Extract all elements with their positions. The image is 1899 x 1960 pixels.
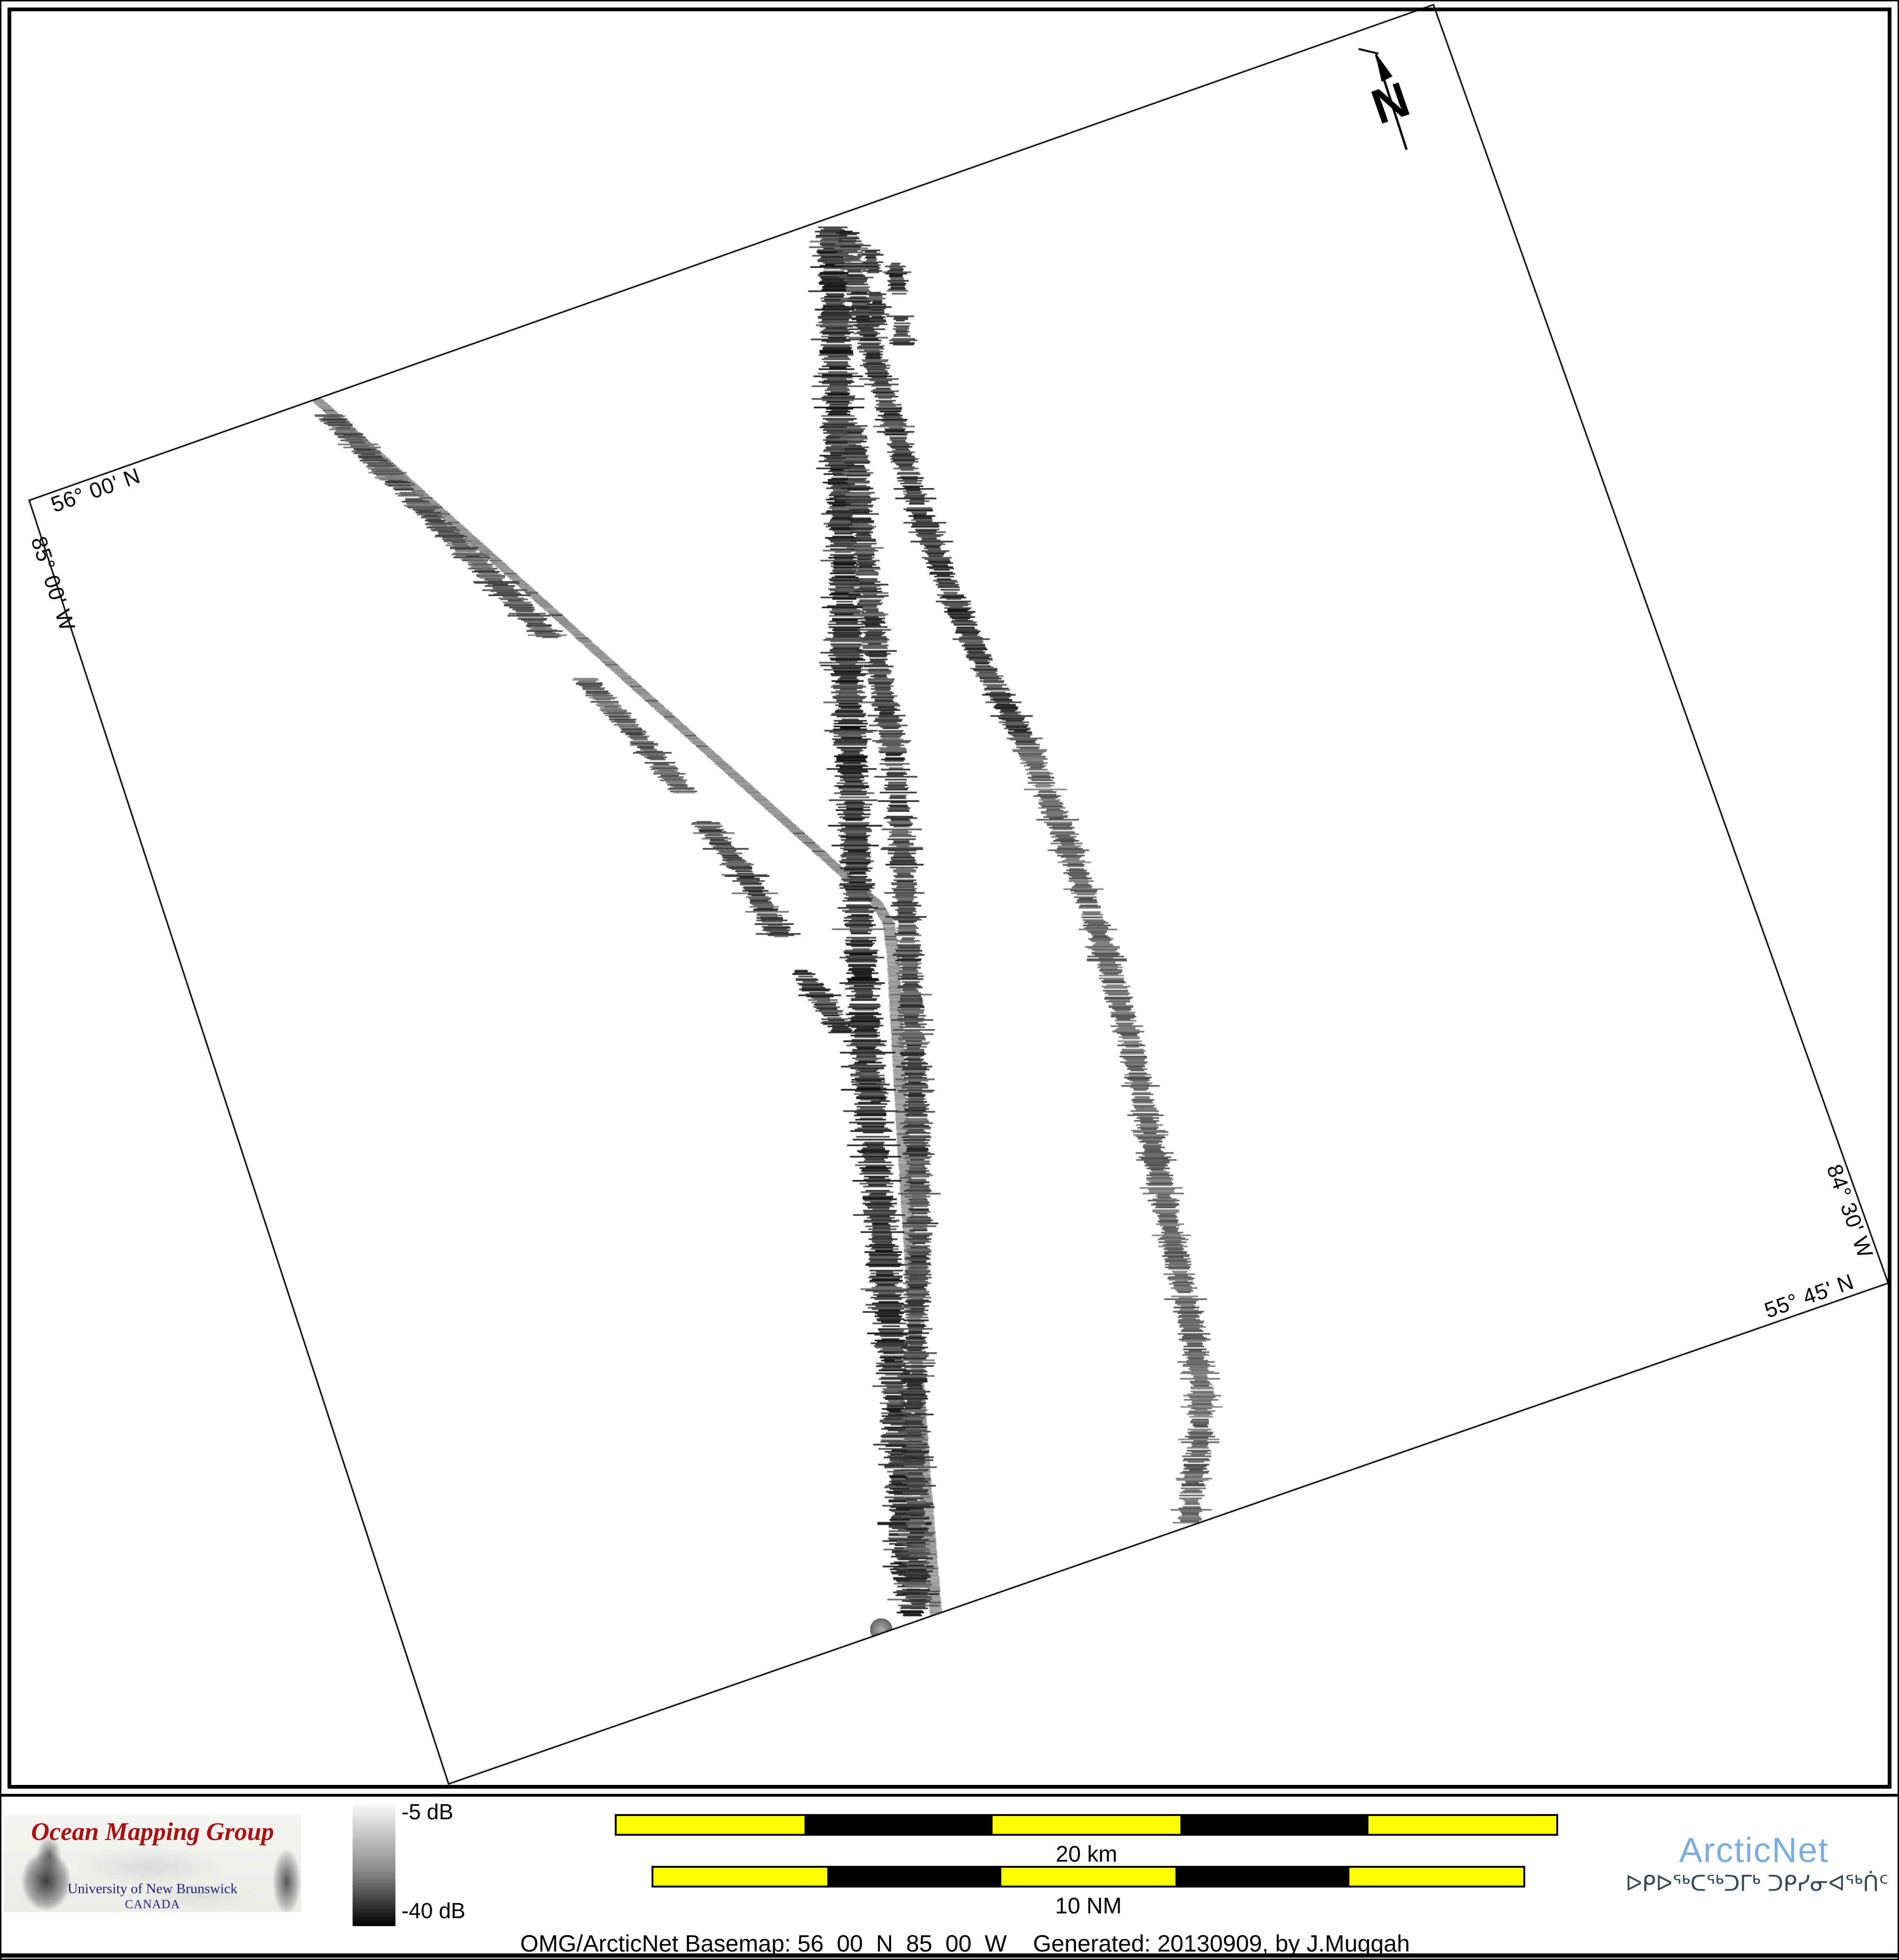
omg-logo-university: University of New Brunswick bbox=[4, 1881, 301, 1897]
footer-divider-top bbox=[1, 1794, 1898, 1797]
credit-line: OMG/ArcticNet Basemap: 56_00_N_85_00_W G… bbox=[480, 1930, 1450, 1957]
basemap-document: 56° 00' N 85° 00' W 84° 30' W 55° 45' N … bbox=[0, 0, 1899, 1960]
scalebar-kilometers-label: 20 km bbox=[615, 1841, 1558, 1867]
colorbar-max-label: -5 dB bbox=[402, 1799, 453, 1824]
scalebar-nautical-miles-label: 10 NM bbox=[652, 1893, 1525, 1919]
omg-logo: Ocean Mapping Group University of New Br… bbox=[4, 1815, 301, 1912]
colorbar-min-label: -40 dB bbox=[402, 1898, 466, 1923]
arcticnet-logo-title: ArcticNet bbox=[1613, 1830, 1895, 1870]
backscatter-colorbar bbox=[353, 1803, 395, 1926]
arcticnet-logo-syllabics: ᐅᑭᐅᖅᑕᖅᑐᒥᒃ ᑐᑭᓯᓂᐊᖅᑏᑦ bbox=[1613, 1871, 1899, 1896]
omg-logo-country: CANADA bbox=[4, 1897, 301, 1912]
omg-logo-title: Ocean Mapping Group bbox=[4, 1817, 301, 1846]
scalebar-kilometers bbox=[615, 1814, 1558, 1836]
scalebar-nautical-miles bbox=[652, 1866, 1525, 1888]
tracklines-canvas bbox=[0, 0, 1899, 1789]
